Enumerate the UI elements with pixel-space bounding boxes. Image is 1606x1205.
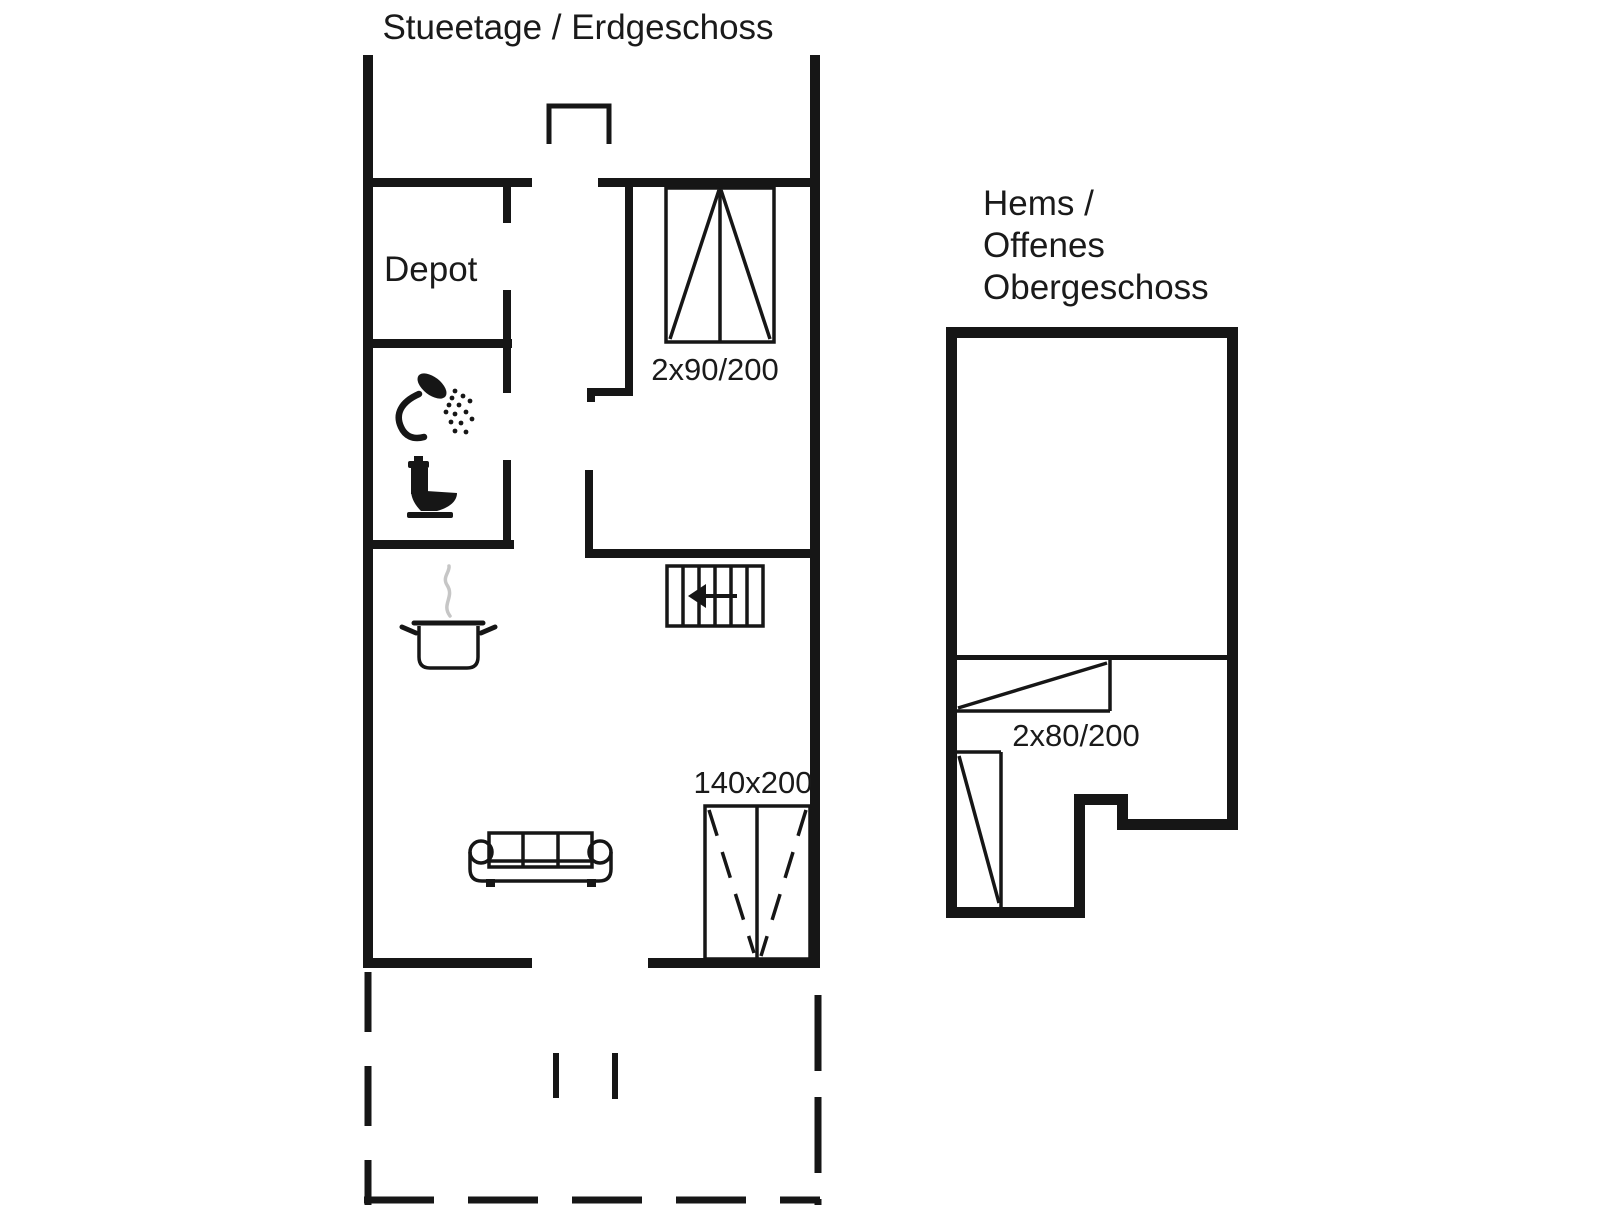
double-bed-label: 140x200 bbox=[694, 765, 813, 800]
depot-room-label: Depot bbox=[384, 250, 478, 289]
ground-floor-title: Stueetage / Erdgeschoss bbox=[382, 8, 773, 47]
stairs-icon bbox=[667, 566, 763, 626]
loft-title-line2: Offenes bbox=[983, 226, 1105, 265]
loft-title-line1: Hems / bbox=[983, 184, 1094, 223]
loft-title-line3: Obergeschoss bbox=[983, 268, 1209, 307]
floor-plan-drawing: Stueetage / Erdgeschoss Depot bbox=[0, 0, 1606, 1205]
loft-floor-divider bbox=[957, 655, 1227, 660]
loft-bed-label: 2x80/200 bbox=[1012, 718, 1140, 753]
bunk-bed-label: 2x90/200 bbox=[651, 352, 779, 387]
